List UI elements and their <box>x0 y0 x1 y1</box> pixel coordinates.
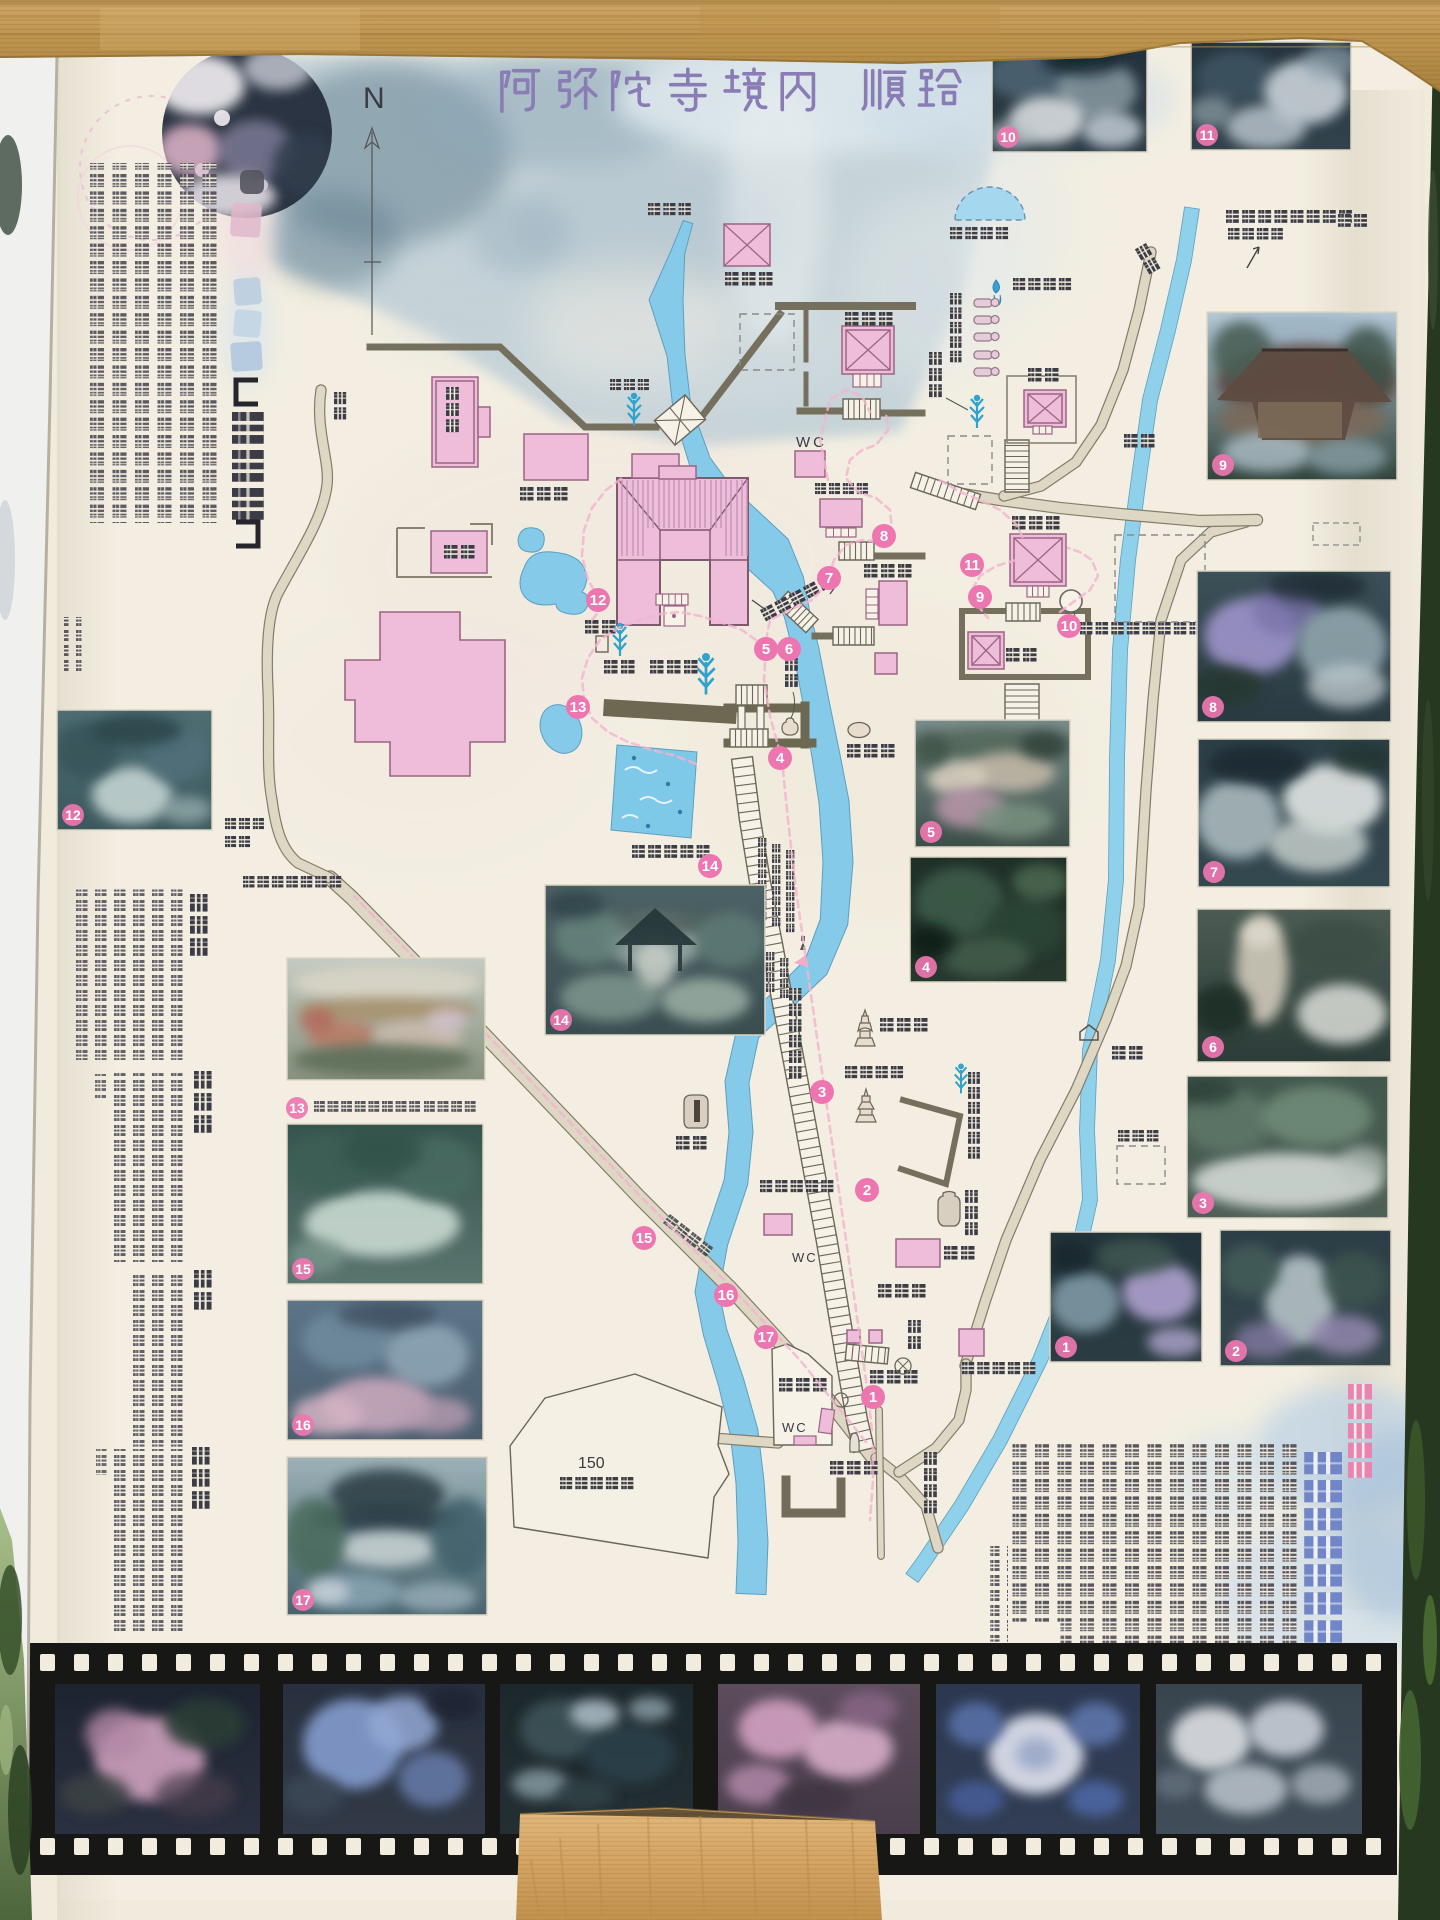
svg-text:9: 9 <box>1219 457 1227 473</box>
svg-text:4: 4 <box>776 750 785 767</box>
svg-text:17: 17 <box>295 1592 311 1608</box>
svg-text:1: 1 <box>869 1389 877 1406</box>
svg-text:11: 11 <box>964 557 980 574</box>
svg-text:12: 12 <box>590 592 607 609</box>
svg-text:3: 3 <box>818 1084 826 1101</box>
svg-text:15: 15 <box>295 1261 311 1277</box>
svg-text:7: 7 <box>1210 864 1218 880</box>
svg-text:13: 13 <box>289 1100 305 1116</box>
svg-text:5: 5 <box>762 641 770 658</box>
svg-text:6: 6 <box>1209 1039 1217 1055</box>
svg-text:14: 14 <box>553 1012 569 1028</box>
svg-text:12: 12 <box>65 807 81 823</box>
svg-text:6: 6 <box>785 641 793 658</box>
svg-text:16: 16 <box>295 1417 311 1433</box>
svg-text:1: 1 <box>1062 1339 1070 1355</box>
svg-text:17: 17 <box>758 1329 775 1346</box>
svg-text:13: 13 <box>570 699 587 716</box>
svg-text:10: 10 <box>1061 618 1078 635</box>
svg-text:150: 150 <box>578 1455 605 1472</box>
svg-text:8: 8 <box>880 528 888 545</box>
svg-text:16: 16 <box>718 1287 735 1304</box>
svg-text:9: 9 <box>976 589 984 606</box>
svg-text:11: 11 <box>1200 127 1215 143</box>
svg-text:7: 7 <box>825 570 833 587</box>
svg-text:8: 8 <box>1209 699 1217 715</box>
svg-text:15: 15 <box>636 1230 653 1247</box>
svg-text:5: 5 <box>927 824 935 840</box>
svg-text:WC: WC <box>782 1420 808 1435</box>
svg-text:N: N <box>363 82 385 115</box>
svg-text:2: 2 <box>1232 1343 1240 1359</box>
svg-text:14: 14 <box>702 858 719 875</box>
svg-text:4: 4 <box>922 959 930 975</box>
svg-text:2: 2 <box>863 1182 871 1199</box>
svg-text:WC: WC <box>792 1250 818 1265</box>
svg-text:3: 3 <box>1199 1195 1207 1211</box>
svg-text:10: 10 <box>1000 129 1016 145</box>
